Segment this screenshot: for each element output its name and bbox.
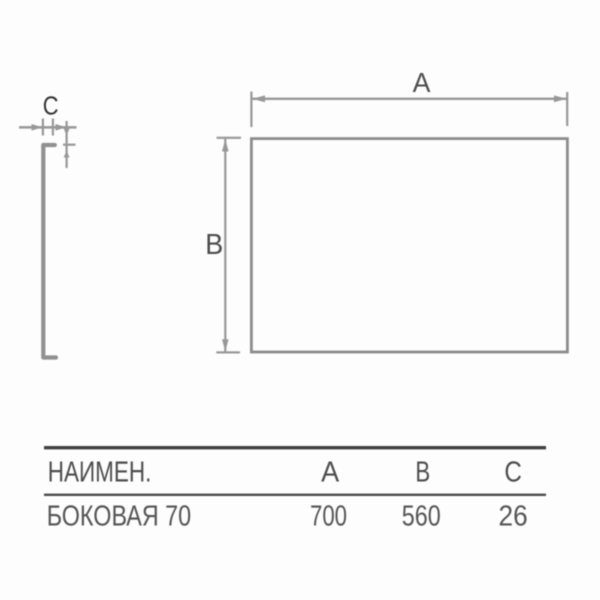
svg-text:B: B [415,457,430,488]
svg-text:НАИМЕН.: НАИМЕН. [48,457,152,488]
svg-text:C: C [504,455,521,487]
svg-text:A: A [413,67,432,98]
svg-text:26: 26 [499,500,528,532]
svg-text:B: B [205,228,223,260]
svg-text:C: C [43,92,59,121]
svg-text:560: 560 [402,499,441,532]
svg-text:700: 700 [310,501,347,532]
svg-text:БОКОВАЯ 70: БОКОВАЯ 70 [47,499,191,532]
svg-text:A: A [321,456,340,488]
